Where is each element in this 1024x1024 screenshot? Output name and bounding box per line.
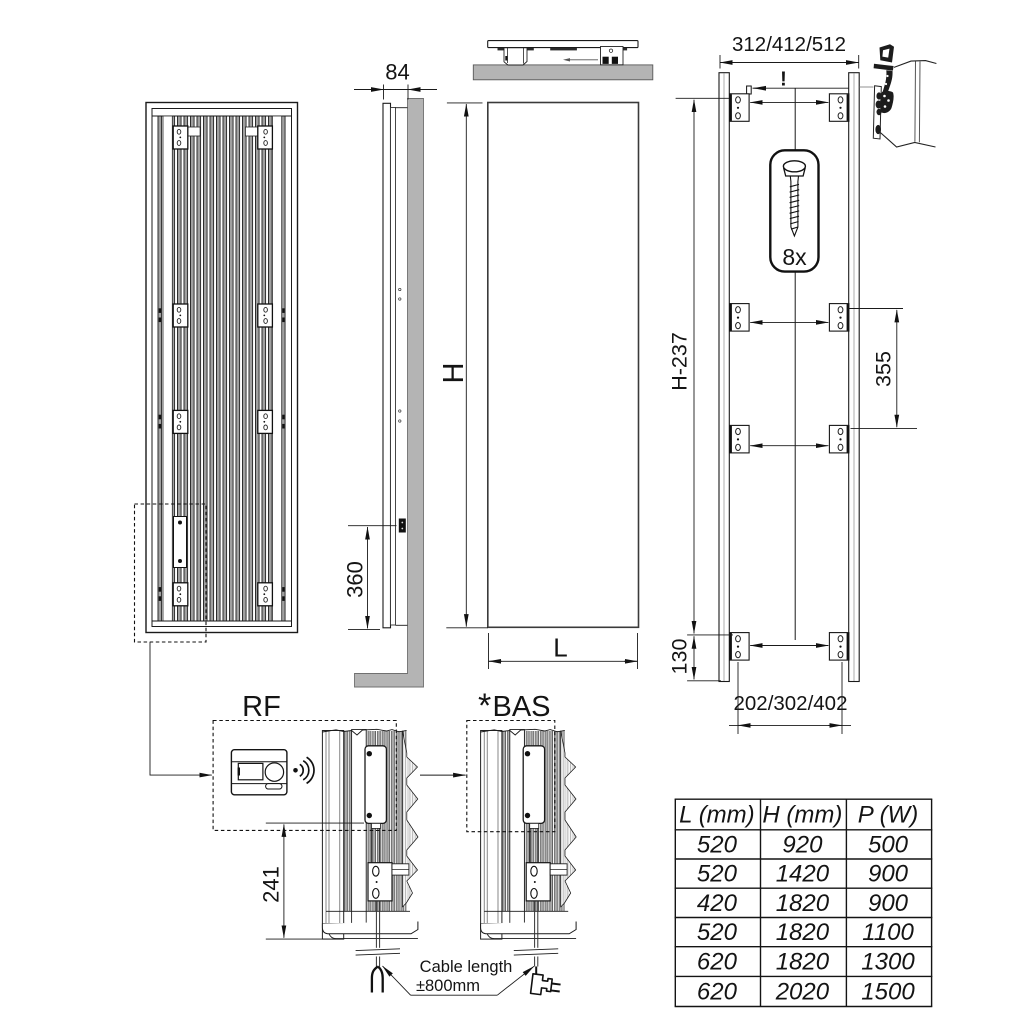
svg-text:355: 355 [872, 351, 896, 387]
svg-text:900: 900 [868, 861, 909, 888]
svg-text:520: 520 [697, 919, 738, 946]
svg-text:±800mm: ±800mm [416, 977, 480, 995]
svg-text:1300: 1300 [861, 949, 915, 976]
svg-text:1820: 1820 [776, 949, 830, 976]
svg-text:2020: 2020 [775, 979, 830, 1006]
svg-text:920: 920 [782, 831, 823, 858]
svg-text:Cable length: Cable length [420, 958, 513, 976]
svg-text:1820: 1820 [776, 919, 830, 946]
svg-text:1100: 1100 [862, 919, 914, 946]
svg-text:H-237: H-237 [668, 332, 692, 391]
svg-text:900: 900 [868, 890, 909, 917]
svg-text:520: 520 [697, 831, 738, 858]
svg-text:360: 360 [343, 561, 368, 598]
svg-text:!: ! [780, 69, 787, 91]
svg-text:130: 130 [668, 639, 692, 675]
svg-text:500: 500 [868, 831, 909, 858]
svg-text:620: 620 [697, 949, 738, 976]
svg-text:L (mm): L (mm) [679, 802, 755, 829]
svg-text:420: 420 [697, 890, 738, 917]
svg-text:84: 84 [385, 60, 409, 85]
svg-text:312/412/512: 312/412/512 [732, 33, 846, 56]
svg-text:8x: 8x [782, 244, 807, 270]
svg-text:L: L [553, 633, 567, 663]
svg-text:241: 241 [258, 866, 283, 903]
svg-text:RF: RF [242, 691, 281, 723]
svg-text:202/302/402: 202/302/402 [733, 692, 847, 715]
svg-text:H (mm): H (mm) [762, 802, 842, 829]
svg-text:*: * [478, 687, 491, 725]
svg-text:1420: 1420 [776, 861, 830, 888]
svg-text:H: H [438, 363, 470, 384]
svg-text:520: 520 [697, 861, 738, 888]
svg-text:1500: 1500 [861, 979, 915, 1006]
svg-text:1820: 1820 [776, 890, 830, 917]
svg-text:BAS: BAS [492, 691, 550, 723]
svg-text:P (W): P (W) [858, 802, 918, 829]
svg-text:620: 620 [697, 979, 738, 1006]
